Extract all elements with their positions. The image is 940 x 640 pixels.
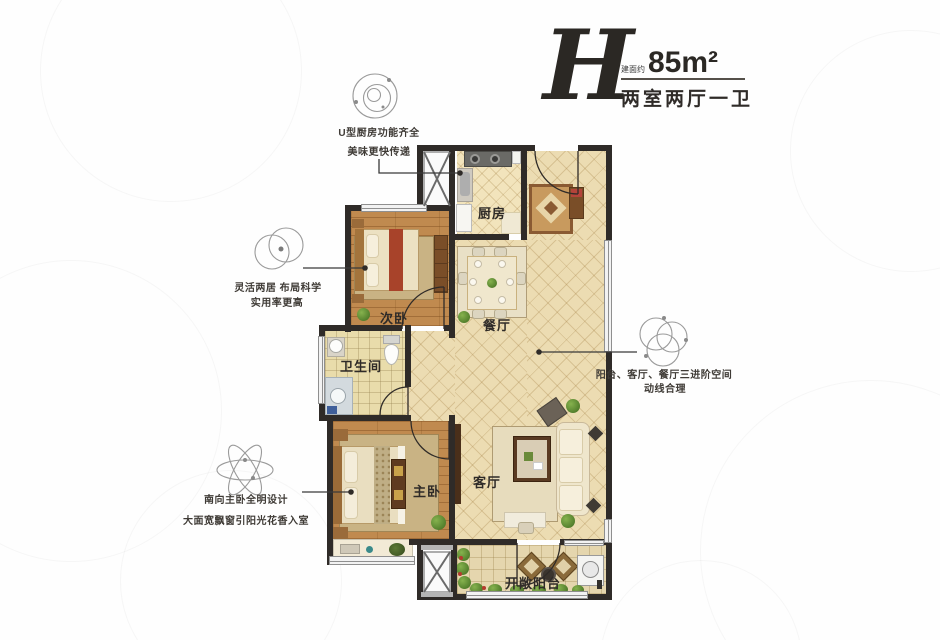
spaces-callout-line2: 动线合理 (644, 380, 686, 395)
bathroom-label: 卫生间 (340, 356, 382, 375)
master-callout-line2: 大面宽飘窗引阳光花香入室 (183, 512, 309, 527)
tv-panel (455, 424, 461, 504)
area-prefix-label: 建面约 (621, 65, 645, 74)
background-swirl (790, 30, 940, 272)
bed-runner (389, 229, 403, 291)
plate (469, 278, 477, 286)
sofa-cushion (559, 485, 583, 511)
background-swirl (40, 0, 302, 202)
bath-bucket (327, 406, 337, 414)
nightstand (333, 429, 348, 441)
sofa-cushion (559, 457, 583, 483)
living-plant (561, 514, 575, 528)
burner (490, 154, 500, 164)
balcony-window (466, 591, 588, 599)
wall-segment (449, 205, 455, 338)
kitchen-cabinet (512, 151, 521, 164)
living-room-label: 客厅 (473, 472, 501, 491)
bedroom2-bed (355, 229, 419, 291)
wardrobe (434, 235, 448, 293)
second-bedroom-label: 次卧 (380, 308, 408, 327)
two-circles-icon (255, 228, 303, 269)
sink-basin (460, 172, 470, 196)
header-divider (621, 78, 745, 80)
dining-chair (516, 272, 526, 285)
toilet-tank (383, 335, 400, 344)
kitchen-appliance (456, 204, 472, 232)
plate (474, 260, 482, 268)
nightstand (352, 219, 364, 228)
dining-plant (458, 311, 470, 323)
nightstand (352, 294, 364, 303)
vanity-basin (330, 388, 346, 404)
wall-segment (327, 415, 333, 565)
bay-window (329, 556, 415, 565)
wall-segment (606, 145, 612, 240)
wall-segment (449, 415, 455, 545)
plate (506, 278, 514, 286)
window (604, 240, 612, 352)
burner (470, 154, 480, 164)
table-item (533, 462, 543, 470)
pillow (344, 487, 358, 519)
master-headboard (333, 446, 342, 524)
utility-shaft-bottom (423, 551, 451, 593)
area-value: 85m² (648, 46, 718, 79)
flexible-callout-line1: 灵活两居 布局科学 (234, 279, 321, 294)
dresser-item (394, 466, 403, 476)
bay-books (340, 544, 360, 554)
cabinet-books (571, 189, 582, 197)
layout-description: 两室两厅一卫 (621, 84, 753, 111)
pillow (366, 234, 379, 258)
wall-segment (345, 205, 351, 332)
three-circles-icon (640, 316, 688, 366)
concentric-circles-icon (353, 74, 397, 118)
bay-plant (389, 543, 405, 556)
bay-cup (366, 546, 373, 553)
window (564, 540, 604, 546)
master-callout-line1: 南向主卧全明设计 (204, 491, 288, 506)
nightstand (333, 527, 348, 539)
balcony-flower (458, 572, 462, 576)
wall-segment (521, 145, 527, 240)
flexible-callout-line2: 实用率更高 (251, 294, 304, 309)
utility-shaft-top (423, 151, 451, 207)
kitchen-label: 厨房 (478, 203, 506, 222)
console-chair (518, 522, 534, 534)
window (604, 519, 612, 543)
wall-segment (606, 543, 612, 600)
corridor-floor (405, 331, 455, 421)
dresser-item (394, 490, 403, 500)
balcony-ornament (597, 580, 602, 589)
pillow (366, 263, 379, 287)
table-centerpiece-plant (487, 278, 497, 288)
washer-drum (582, 561, 599, 578)
shaft-cap (421, 545, 453, 550)
kitchen-callout-line2: 美味更快传递 (348, 143, 411, 158)
kitchen-callout-line1: U型厨房功能齐全 (338, 124, 419, 139)
bedroom2-plant (357, 308, 370, 321)
plate (498, 260, 506, 268)
shaft-cap (421, 592, 453, 597)
bedroom2-headboard (355, 229, 364, 291)
bed-floral-band (374, 446, 390, 524)
wall-segment (417, 145, 535, 151)
wall-segment (444, 325, 455, 331)
window (361, 204, 427, 212)
area-row: 建面约85m² (621, 46, 718, 80)
wall-segment (449, 234, 509, 240)
wall-segment (449, 145, 455, 211)
sofa-cushion (559, 429, 583, 455)
wall-segment (449, 539, 517, 545)
balcony-label: 开敞阳台 (505, 573, 561, 592)
master-bedroom-label: 主卧 (413, 481, 441, 500)
living-plant (566, 399, 580, 413)
plate (498, 296, 506, 304)
floorplan-page: H 建面约85m² 两室两厅一卫 (0, 0, 940, 640)
pillow (344, 451, 358, 483)
table-plant (524, 452, 533, 461)
balcony-flower (459, 556, 463, 560)
window (318, 336, 325, 404)
spaces-callout-line1: 阳台、客厅、餐厅三进阶空间 (596, 366, 733, 381)
dining-label: 餐厅 (483, 315, 511, 334)
master-plant (431, 515, 446, 530)
wall-segment (405, 325, 411, 387)
wall-sink (329, 339, 343, 353)
plate (474, 296, 482, 304)
balcony-flower (482, 586, 486, 590)
wall-segment (417, 145, 423, 211)
